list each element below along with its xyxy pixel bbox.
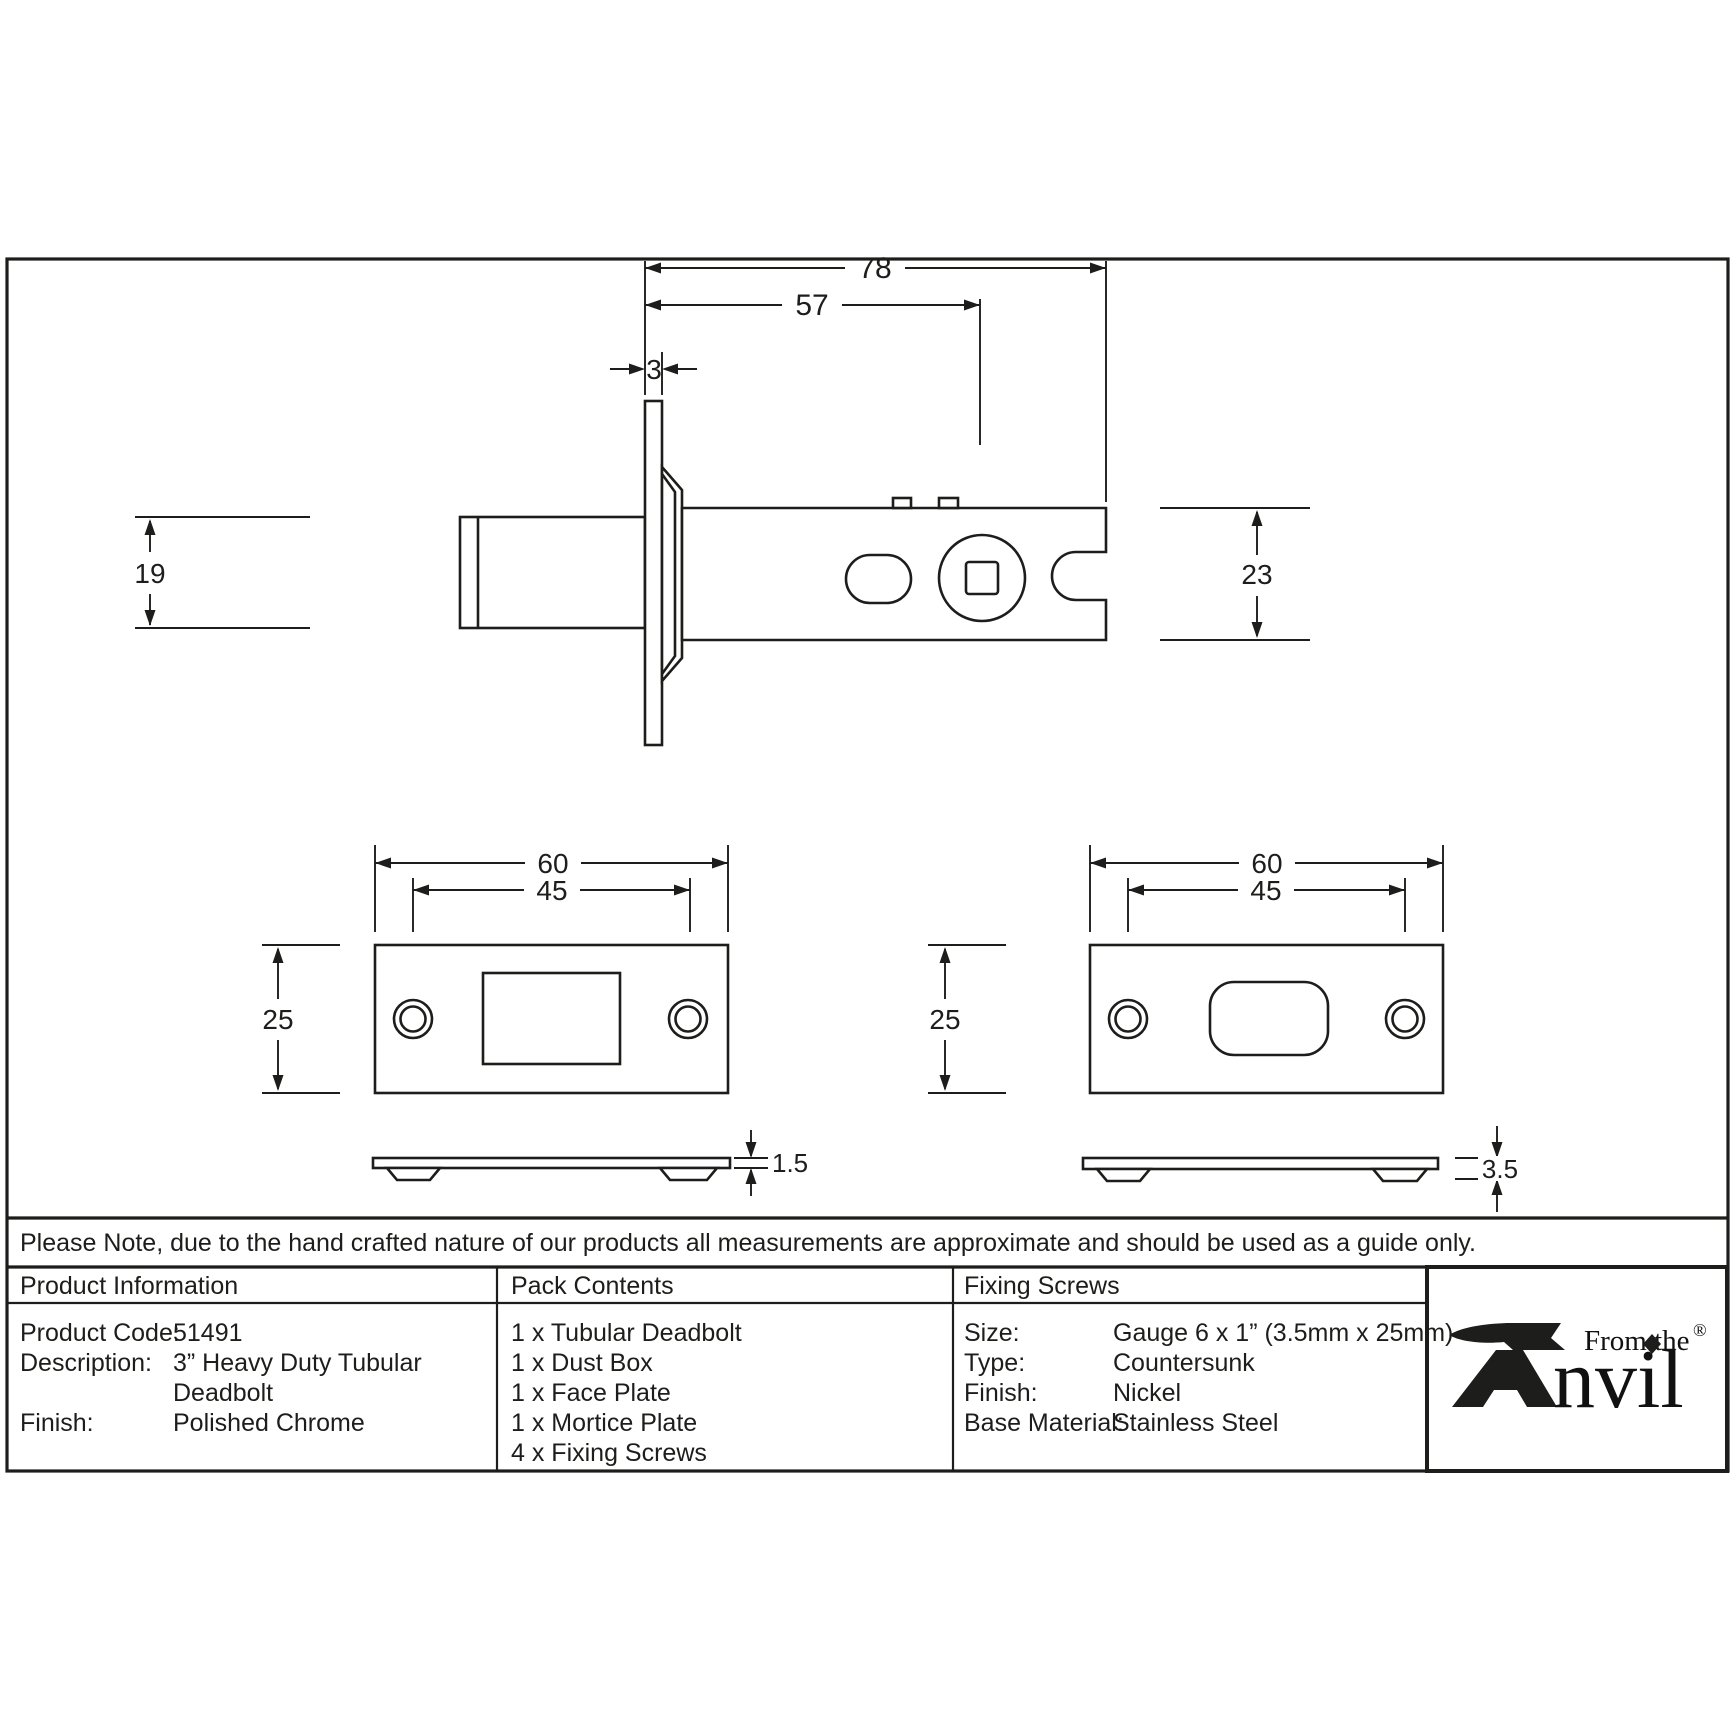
- dim-label-23: 23: [1241, 559, 1272, 590]
- description-value-line2: Deadbolt: [173, 1379, 273, 1407]
- screw-type-label: Type:: [964, 1349, 1025, 1377]
- screw-size-value: Gauge 6 x 1” (3.5mm x 25mm): [1113, 1319, 1453, 1347]
- handcrafted-note: Please Note, due to the hand crafted nat…: [20, 1229, 1476, 1257]
- anvil-icon: [1449, 1323, 1565, 1350]
- dim-bolt-height: 19: [134, 517, 310, 628]
- dim-label-1-5: 1.5: [772, 1148, 808, 1178]
- product-code-value: 51491: [173, 1319, 243, 1347]
- mortice-plate-edge-profile: 3.5: [1083, 1126, 1524, 1212]
- face-plate-edge-profile: 1.5: [373, 1130, 808, 1196]
- fixing-screws-cell: Size: Gauge 6 x 1” (3.5mm x 25mm) Type: …: [964, 1319, 1453, 1437]
- pack-contents-cell: 1 x Tubular Deadbolt 1 x Dust Box 1 x Fa…: [511, 1319, 742, 1467]
- dim-morticeplate-height: 25: [928, 945, 1006, 1093]
- dim-label-45-right: 45: [1250, 875, 1281, 906]
- dim-label-3-5: 3.5: [1482, 1154, 1518, 1184]
- anvil-legs: [1452, 1350, 1557, 1407]
- case-tab-right: [939, 498, 958, 508]
- pack-contents-header: Pack Contents: [511, 1272, 674, 1300]
- screw-finish-label: Finish:: [964, 1379, 1038, 1407]
- dim-label-3: 3: [646, 354, 662, 385]
- description-label: Description:: [20, 1349, 152, 1377]
- faceplate-edge: [645, 401, 662, 745]
- dust-box-flange: [662, 467, 682, 681]
- screw-type-value: Countersunk: [1113, 1349, 1255, 1377]
- face-plate-profile-bar: [373, 1158, 730, 1168]
- product-code-label: Product Code:: [20, 1319, 180, 1347]
- pack-item-1: 1 x Tubular Deadbolt: [511, 1319, 742, 1347]
- dim-faceplate-profile-thickness: 1.5: [734, 1130, 808, 1196]
- dim-label-25-left: 25: [262, 1004, 293, 1035]
- spec-sheet-page: 78 57 3: [0, 0, 1735, 1735]
- deadbolt-side-view: 78 57 3: [134, 252, 1310, 745]
- face-plate-profile-foot-left: [387, 1168, 440, 1180]
- case-oval-hole: [846, 555, 911, 603]
- face-plate-screw-hole-right-inner: [676, 1007, 701, 1032]
- fixing-screws-header: Fixing Screws: [964, 1272, 1120, 1300]
- pack-item-4: 1 x Mortice Plate: [511, 1409, 697, 1437]
- mortice-plate-screw-hole-right-inner: [1393, 1007, 1418, 1032]
- dim-faceplate-height: 25: [262, 945, 340, 1093]
- dim-morticeplate-screw-spacing: 45: [1128, 875, 1405, 932]
- mortice-plate-profile-foot-left: [1097, 1169, 1150, 1181]
- screw-size-label: Size:: [964, 1319, 1020, 1347]
- product-information-cell: Product Code: 51491 Description: 3” Heav…: [20, 1319, 422, 1437]
- deadbolt-bolt: [460, 517, 645, 628]
- sheet-border: [7, 259, 1728, 1471]
- face-plate-profile-foot-right: [660, 1168, 717, 1180]
- screw-finish-value: Nickel: [1113, 1379, 1181, 1407]
- pack-item-2: 1 x Dust Box: [511, 1349, 653, 1377]
- face-plate-aperture: [483, 973, 620, 1064]
- dim-label-45-left: 45: [536, 875, 567, 906]
- pack-item-3: 1 x Face Plate: [511, 1379, 671, 1407]
- finish-value: Polished Chrome: [173, 1409, 365, 1437]
- finish-label: Finish:: [20, 1409, 94, 1437]
- mortice-plate-screw-hole-left-inner: [1116, 1007, 1141, 1032]
- dim-overall-length: 78: [645, 252, 1106, 285]
- face-plate-view: 60 45 25: [262, 845, 728, 1093]
- dim-label-19: 19: [134, 558, 165, 589]
- dim-label-25-right: 25: [929, 1004, 960, 1035]
- from-the-anvil-logo: From the nvil ®: [1449, 1320, 1707, 1426]
- screw-material-value: Stainless Steel: [1113, 1409, 1278, 1437]
- technical-drawing-canvas: 78 57 3: [0, 0, 1735, 1735]
- pack-item-5: 4 x Fixing Screws: [511, 1439, 707, 1467]
- dim-label-57: 57: [795, 289, 828, 322]
- case-tab-left: [893, 498, 911, 508]
- mortice-plate-profile-foot-right: [1373, 1169, 1427, 1181]
- dim-case-height: 23: [1160, 508, 1310, 640]
- logo-name-text: nvil: [1553, 1333, 1684, 1426]
- product-information-header: Product Information: [20, 1272, 238, 1300]
- dim-backset: 57: [645, 289, 980, 322]
- mortice-plate-aperture: [1210, 982, 1328, 1055]
- dim-morticeplate-profile-thickness: 3.5: [1455, 1126, 1524, 1212]
- face-plate-screw-hole-left-inner: [401, 1007, 426, 1032]
- dim-label-78: 78: [858, 252, 891, 285]
- logo-registered-mark: ®: [1693, 1320, 1707, 1340]
- screw-material-label: Base Material:: [964, 1409, 1124, 1437]
- dim-faceplate-thickness: 3: [610, 354, 697, 385]
- spindle-square-hole: [966, 562, 998, 594]
- dim-faceplate-screw-spacing: 45: [413, 875, 690, 932]
- description-value-line1: 3” Heavy Duty Tubular: [173, 1349, 422, 1377]
- mortice-plate-profile-bar: [1083, 1158, 1438, 1169]
- mortice-plate-view: 60 45 25: [928, 845, 1443, 1093]
